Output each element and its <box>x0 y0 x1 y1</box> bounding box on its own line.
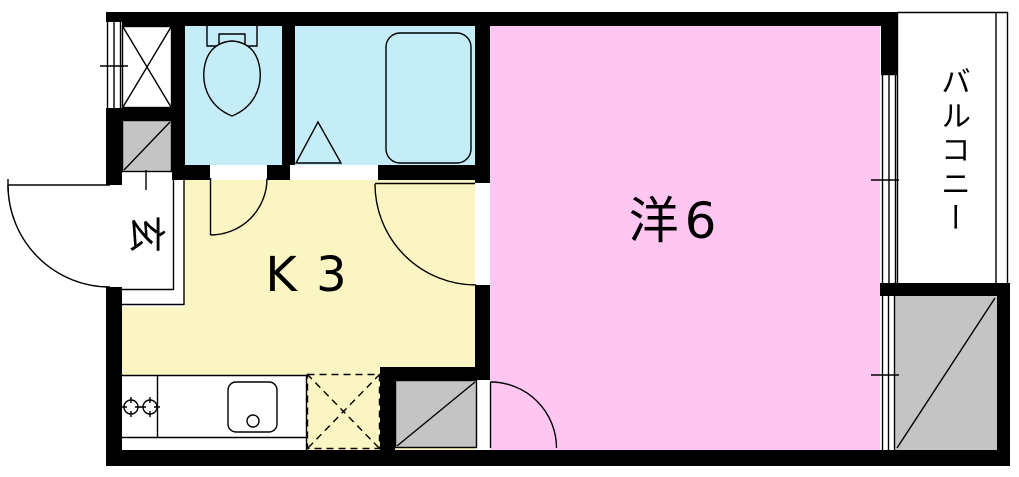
closet-door-icon <box>491 382 557 448</box>
balcony-label: バルコニー <box>933 66 971 286</box>
western-room-label: 洋6 <box>598 195 753 247</box>
window-left-icon <box>100 22 128 108</box>
window-right-icon <box>871 74 899 450</box>
kitchen-label: K 3 <box>232 251 382 299</box>
kitchen-western-door-icon <box>375 184 476 286</box>
service-box-entrance-icon <box>123 121 172 172</box>
floorplan: K 3 洋6 玄 バルコニー <box>0 0 1019 477</box>
entrance-label: 玄 <box>124 212 168 256</box>
toilet-door-icon <box>211 178 268 235</box>
stove-burners-icon <box>121 397 160 417</box>
service-box-balcony-icon <box>897 298 995 448</box>
toilet-icon <box>204 26 261 116</box>
pipe-shaft-icon <box>123 27 172 108</box>
closet-box-icon <box>396 381 477 448</box>
entrance-door-icon <box>8 179 110 287</box>
bathtub-icon <box>386 33 471 163</box>
bath-door-icon <box>296 122 341 163</box>
refrigerator-space-icon <box>307 374 380 449</box>
kitchen-sink-icon <box>228 382 277 432</box>
